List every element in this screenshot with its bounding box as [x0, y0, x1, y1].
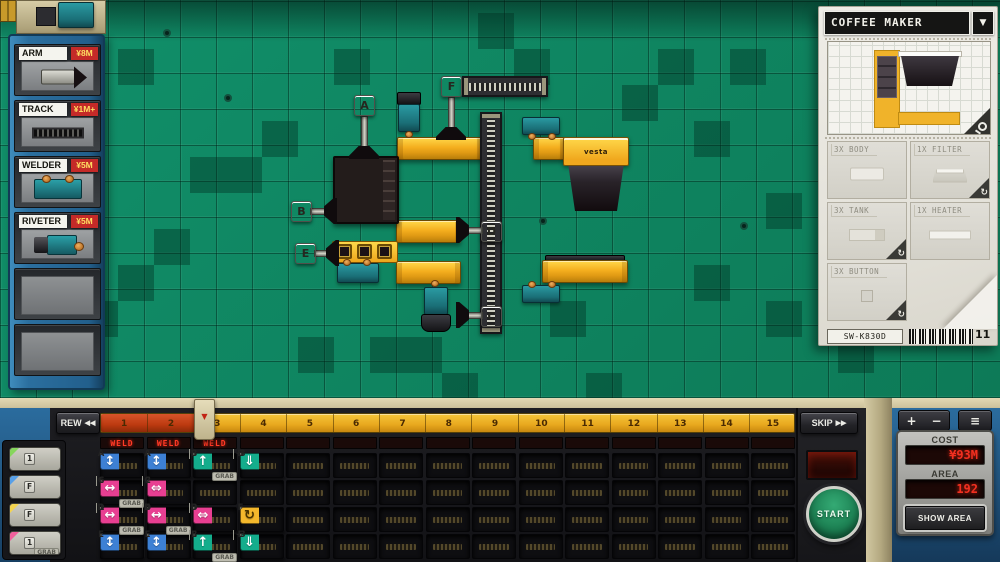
program-card-E-3[interactable]: ⇓E-3	[240, 534, 285, 559]
board-socket	[224, 94, 232, 102]
ruler-tick-7: 7	[379, 414, 425, 432]
part-cell-button[interactable]: 3X BUTTON↻	[827, 263, 907, 321]
riveter-machine[interactable]	[424, 287, 448, 315]
palette-command-1[interactable]: ↕F	[9, 475, 61, 499]
ruler-tick-15: 15	[749, 414, 795, 432]
coffee-maker-hopper[interactable]	[566, 166, 626, 211]
palette-color-corner	[9, 475, 20, 486]
part-image-panel	[21, 276, 94, 315]
program-card-D3[interactable]: ⇔D3	[193, 507, 238, 532]
grab-label: GRAB	[34, 548, 59, 555]
blueprint-view[interactable]	[827, 41, 991, 135]
part-price-tag: ¥5M	[71, 215, 98, 228]
playhead[interactable]: ▼	[194, 399, 215, 440]
blueprint-base	[898, 112, 960, 125]
blueprint-carafe	[901, 56, 959, 86]
program-card-E3[interactable]: ↑E3GRAB	[193, 534, 238, 559]
button-part[interactable]	[357, 244, 372, 259]
program-slot[interactable]	[705, 507, 749, 532]
barcode	[909, 329, 973, 344]
board-socket	[740, 222, 748, 230]
welder-tip	[363, 259, 371, 266]
program-slot[interactable]	[472, 453, 516, 478]
program-slot[interactable]	[286, 453, 330, 478]
menu-icon: ≡	[970, 414, 980, 428]
grab-label: GRAB	[212, 553, 237, 562]
program-slot[interactable]	[519, 534, 563, 559]
program-slot[interactable]	[705, 534, 749, 559]
blueprint-buttons	[876, 102, 898, 111]
riveter-tip	[405, 131, 413, 138]
program-slot[interactable]	[333, 534, 377, 559]
part-price-tag: ¥5M	[71, 159, 98, 172]
filter-shape-icon	[933, 166, 967, 183]
ruler-tick-14: 14	[703, 414, 749, 432]
keycap: E	[100, 534, 102, 536]
chevron-down-icon[interactable]: ▼	[972, 11, 994, 35]
program-slot[interactable]	[379, 453, 423, 478]
part-cell-tank[interactable]: 3X TANK↻	[827, 202, 907, 260]
welder-part-icon	[34, 179, 82, 199]
arm-handle-f[interactable]: F	[441, 76, 462, 97]
magnifier-icon	[978, 122, 987, 131]
instruction-led-empty	[286, 437, 330, 449]
grid-cell-shaded	[226, 157, 262, 193]
grid-cell-shaded	[766, 301, 802, 337]
paper-fold	[943, 275, 997, 329]
keycap: E-3	[240, 534, 242, 536]
brand-label: vesta	[584, 148, 608, 156]
keycap: E3	[193, 534, 195, 536]
sidebar-item-empty	[14, 268, 101, 320]
sku-label: SW-K830D	[827, 329, 903, 344]
sidebar-item-track[interactable]: TRACK¥1M+	[14, 100, 101, 152]
instruction-led-empty	[751, 437, 795, 449]
program-slot[interactable]	[565, 534, 609, 559]
program-slot[interactable]	[565, 480, 609, 505]
program-card-C6[interactable]: ↔C6GRAB	[100, 480, 145, 505]
key-segment: E	[143, 530, 153, 540]
program-slot[interactable]	[519, 453, 563, 478]
program-slot[interactable]	[612, 453, 656, 478]
program-slot[interactable]	[751, 480, 795, 505]
key-segment: -3	[233, 449, 247, 459]
keycap: B-3	[240, 453, 242, 455]
program-slot[interactable]	[565, 507, 609, 532]
program-card-D4[interactable]: ↔D4GRAB	[147, 507, 192, 532]
part-image-panel	[21, 117, 94, 147]
instruction-led: WELD	[147, 437, 191, 449]
part-label: RIVETER	[19, 215, 67, 228]
program-slot[interactable]	[658, 453, 702, 478]
product-panel: COFFEE MAKER ▼ 3X BODY1X FILTER↻3X TANK↻…	[818, 6, 998, 346]
key-segment: 6	[96, 476, 107, 486]
grid-cell-shaded	[550, 301, 586, 337]
program-slot[interactable]	[426, 534, 470, 559]
keycap: A	[147, 453, 149, 455]
tank-shape-icon	[849, 229, 885, 241]
program-card-D1[interactable]: ↔D1GRAB	[100, 507, 145, 532]
instruction-led-empty	[333, 437, 377, 449]
body-shape-icon	[850, 168, 884, 181]
part-qty-label: 1X HEATER	[914, 205, 970, 217]
area-value: 192	[905, 479, 985, 499]
grid-cell-shaded	[694, 121, 730, 157]
grid-cell-shaded	[370, 337, 406, 373]
part-image-panel	[21, 61, 94, 91]
grid-cell-shaded	[766, 193, 802, 229]
machine-scrap	[36, 7, 56, 26]
program-slot[interactable]	[612, 507, 656, 532]
program-slot[interactable]	[751, 507, 795, 532]
program-slot[interactable]	[612, 534, 656, 559]
rotate-icon: ↻	[897, 310, 905, 320]
product-dropdown[interactable]: COFFEE MAKER	[824, 11, 970, 35]
program-slot[interactable]	[612, 480, 656, 505]
key-segment: 3	[189, 449, 200, 459]
program-card-F[interactable]: ↻F	[240, 507, 285, 532]
program-card-A[interactable]: ↕A	[147, 453, 192, 478]
program-card-E[interactable]: ↕E	[100, 534, 145, 559]
program-slot[interactable]	[379, 480, 423, 505]
part-price-tag: ¥1M+	[71, 103, 98, 116]
arm-part-icon	[41, 70, 75, 85]
cost-value: ¥93M	[905, 445, 985, 465]
part-label: ARM	[19, 47, 67, 60]
sidebar-item-welder[interactable]: WELDER¥5M	[14, 156, 101, 208]
welder-machine[interactable]	[337, 263, 379, 283]
conveyor[interactable]	[397, 137, 483, 160]
part-label: TRACK	[19, 103, 67, 116]
cost-label: COST	[898, 435, 992, 445]
program-slot[interactable]	[472, 480, 516, 505]
grid-cell-shaded	[118, 265, 154, 301]
program-slot[interactable]	[472, 534, 516, 559]
zoom-out-button[interactable]: −	[931, 414, 941, 428]
palette-color-corner	[9, 531, 20, 542]
keycap: 1	[24, 537, 35, 549]
part-image-panel	[21, 332, 94, 371]
start-button[interactable]: START	[806, 486, 862, 542]
show-area-button[interactable]: SHOW AREA	[905, 506, 985, 530]
perforation	[825, 137, 991, 139]
instruction-led-empty	[472, 437, 516, 449]
track-part-icon	[32, 128, 84, 139]
button-part[interactable]	[337, 244, 352, 259]
program-card-B3[interactable]: ↑B3GRAB	[193, 453, 238, 478]
riveter-tip	[431, 280, 439, 287]
ruler-tick-4: 4	[240, 414, 286, 432]
welder-tip	[548, 133, 556, 140]
keycap: 1	[24, 453, 35, 465]
menu-button[interactable]: ≡	[958, 410, 992, 431]
zoom-in-button[interactable]: +	[906, 414, 916, 428]
riveter-base	[421, 314, 451, 332]
playhead-marker-icon: ▼	[201, 412, 207, 421]
arm-handle-a[interactable]: A	[354, 95, 375, 116]
program-card-A[interactable]: ↕A	[100, 453, 145, 478]
keycap: F	[24, 481, 35, 493]
board-socket	[163, 29, 171, 37]
button-shape-icon	[861, 290, 873, 302]
program-slot[interactable]	[565, 453, 609, 478]
grid-cell-shaded	[406, 337, 442, 373]
arm-rod	[448, 97, 455, 130]
arm-rod	[361, 116, 368, 149]
board-socket	[539, 217, 547, 225]
grid-cell-shaded	[478, 13, 514, 49]
deck-plank	[864, 398, 892, 562]
conveyor[interactable]	[396, 220, 461, 243]
program-card-B-3[interactable]: ⇓B-3	[240, 453, 285, 478]
button-part[interactable]	[377, 244, 392, 259]
cost-panel: COST ¥93M AREA 192 SHOW AREA	[896, 430, 994, 536]
keycap: E	[147, 534, 149, 536]
grid-cell-shaded	[298, 337, 334, 373]
program-slot[interactable]	[705, 453, 749, 478]
program-slot[interactable]	[472, 507, 516, 532]
skip-icon: ▶▶	[836, 419, 847, 427]
body-part-block[interactable]	[333, 156, 399, 224]
rewind-button[interactable]: REW ◀◀	[56, 412, 100, 434]
program-slot[interactable]	[286, 534, 330, 559]
instruction-led-empty	[705, 437, 749, 449]
key-segment: 3	[189, 530, 200, 540]
keycap: B3	[193, 453, 195, 455]
perforation	[825, 38, 991, 40]
key-segment: 3	[189, 503, 200, 513]
part-qty-label: 3X BODY	[831, 144, 877, 156]
keycap: D4	[147, 507, 149, 509]
ruler-tick-13: 13	[657, 414, 703, 432]
ruler-tick-1: 1	[101, 414, 147, 432]
grid-cell-shaded	[262, 121, 298, 157]
palette-command-3[interactable]: ↔F1GRAB	[9, 531, 61, 555]
keycap: D1	[100, 507, 102, 509]
status-display	[806, 450, 858, 480]
sidebar-item-empty	[14, 324, 101, 376]
ruler-tick-10: 10	[518, 414, 564, 432]
keycap: F	[240, 507, 242, 509]
program-slot[interactable]	[286, 507, 330, 532]
coffee-maker-band[interactable]: vesta	[563, 137, 629, 166]
program-slot[interactable]	[751, 534, 795, 559]
program-slot[interactable]	[379, 534, 423, 559]
key-segment: 1	[96, 503, 107, 513]
instruction-led-empty	[565, 437, 609, 449]
part-qty-label: 3X TANK	[831, 205, 877, 217]
welder-tip	[343, 259, 351, 266]
riveter-part-icon	[47, 235, 77, 255]
key-segment: A	[142, 449, 153, 459]
program-slot[interactable]	[240, 480, 284, 505]
welder-tip	[528, 281, 536, 288]
ruler-tick-8: 8	[425, 414, 471, 432]
program-card-C2[interactable]: ⇔C2	[147, 480, 192, 505]
riveter-machine[interactable]	[398, 104, 420, 132]
arm-handle-c[interactable]: C	[481, 306, 502, 327]
program-slot[interactable]	[379, 507, 423, 532]
blueprint-panel	[877, 56, 897, 98]
rewind-label: REW	[61, 418, 82, 428]
program-slot[interactable]	[426, 480, 470, 505]
skip-button[interactable]: SKIP ▶▶	[800, 412, 858, 434]
key-segment: E	[96, 530, 106, 540]
program-slot[interactable]	[426, 507, 470, 532]
grid-cell-shaded	[694, 265, 730, 301]
part-cell-body[interactable]: 3X BODY	[827, 141, 907, 199]
conveyor[interactable]	[542, 260, 628, 283]
parts-sidebar: ARM¥8MTRACK¥1M+WELDER¥5MRIVETER¥5M	[8, 34, 105, 390]
program-slot[interactable]	[333, 507, 377, 532]
keycap: D3	[193, 507, 195, 509]
key-segment: 4	[142, 503, 153, 513]
grid-cell-shaded	[730, 49, 766, 85]
ruler-tick-6: 6	[333, 414, 379, 432]
skip-label: SKIP	[812, 418, 833, 428]
program-slot[interactable]	[751, 453, 795, 478]
program-slot[interactable]	[519, 507, 563, 532]
part-qty-label: 1X FILTER	[914, 144, 970, 156]
keycap: C2	[147, 480, 149, 482]
grab-label: GRAB	[212, 472, 237, 481]
program-slot[interactable]	[658, 507, 702, 532]
grid-cell-shaded	[190, 157, 226, 193]
rotate-icon: ↻	[897, 249, 905, 259]
welder-tip	[528, 133, 536, 140]
grid-cell-shaded	[154, 229, 190, 265]
part-price-tag: ¥8M	[71, 47, 98, 60]
area-label: AREA	[898, 469, 992, 479]
program-slot[interactable]	[658, 480, 702, 505]
instruction-led: WELD	[100, 437, 144, 449]
arm-handle-e[interactable]: E	[295, 243, 316, 264]
heater-shape-icon	[929, 231, 971, 240]
ruler-tick-12: 12	[610, 414, 656, 432]
ruler-tick-5: 5	[286, 414, 332, 432]
ruler-tick-11: 11	[564, 414, 610, 432]
palette-command-0[interactable]: ↑F1	[9, 447, 61, 471]
sidebar-item-arm[interactable]: ARM¥8M	[14, 44, 101, 96]
palette-command-2[interactable]: ↻F	[9, 503, 61, 527]
part-label: WELDER	[19, 159, 67, 172]
program-slot[interactable]	[658, 534, 702, 559]
rotate-icon: ↻	[980, 188, 988, 198]
grid-cell-shaded	[658, 49, 694, 85]
game-screen: vesta A B C D E F ARM¥8MTRACK¥1M+WELDER¥…	[0, 0, 1000, 562]
machine-scrap	[58, 2, 94, 28]
instruction-led-empty	[426, 437, 470, 449]
program-slot[interactable]	[286, 480, 330, 505]
program-slot[interactable]	[705, 480, 749, 505]
part-image-panel	[21, 173, 94, 203]
instruction-led-empty	[379, 437, 423, 449]
rewind-icon: ◀◀	[85, 419, 96, 427]
conveyor[interactable]	[533, 137, 566, 160]
welder-machine[interactable]	[522, 285, 560, 303]
keycap: F	[24, 509, 35, 521]
arm-handle-d[interactable]: D	[481, 221, 502, 242]
command-palette: ↑F1↕F↻F↔F1GRAB	[2, 440, 66, 560]
part-image-panel	[21, 229, 94, 259]
grid-cell-shaded	[118, 49, 154, 85]
welder-machine[interactable]	[522, 117, 560, 135]
instruction-led-empty	[240, 437, 284, 449]
program-slot[interactable]	[193, 480, 237, 505]
conveyor[interactable]	[396, 261, 461, 284]
program-slot[interactable]	[333, 453, 377, 478]
program-card-E[interactable]: ↕E	[147, 534, 192, 559]
order-count: 11	[975, 328, 995, 341]
arm-handle-b[interactable]: B	[291, 201, 312, 222]
instruction-led-empty	[519, 437, 563, 449]
part-qty-label: 3X BUTTON	[831, 266, 887, 278]
ruler-tick-2: 2	[147, 414, 193, 432]
horizontal-track[interactable]	[462, 76, 548, 97]
keycap: C6	[100, 480, 102, 482]
palette-color-corner	[9, 447, 20, 458]
program-slot[interactable]	[426, 453, 470, 478]
grid-cell-shaded	[622, 85, 658, 121]
zoom-buttons: + −	[898, 410, 950, 431]
program-slot[interactable]	[519, 480, 563, 505]
sidebar-item-riveter[interactable]: RIVETER¥5M	[14, 212, 101, 264]
key-segment: A	[96, 449, 107, 459]
palette-color-corner	[9, 503, 20, 514]
grid-cell-shaded	[334, 49, 370, 85]
welder-tip	[548, 281, 556, 288]
part-cell-heater[interactable]: 1X HEATER	[910, 202, 990, 260]
keycap: A	[100, 453, 102, 455]
instruction-led-empty	[658, 437, 702, 449]
key-segment: 2	[142, 476, 153, 486]
ruler-tick-9: 9	[471, 414, 517, 432]
instruction-led-empty	[612, 437, 656, 449]
key-segment: F	[236, 503, 246, 513]
program-slot[interactable]	[333, 480, 377, 505]
key-segment: -3	[233, 530, 247, 540]
part-cell-filter[interactable]: 1X FILTER↻	[910, 141, 990, 199]
